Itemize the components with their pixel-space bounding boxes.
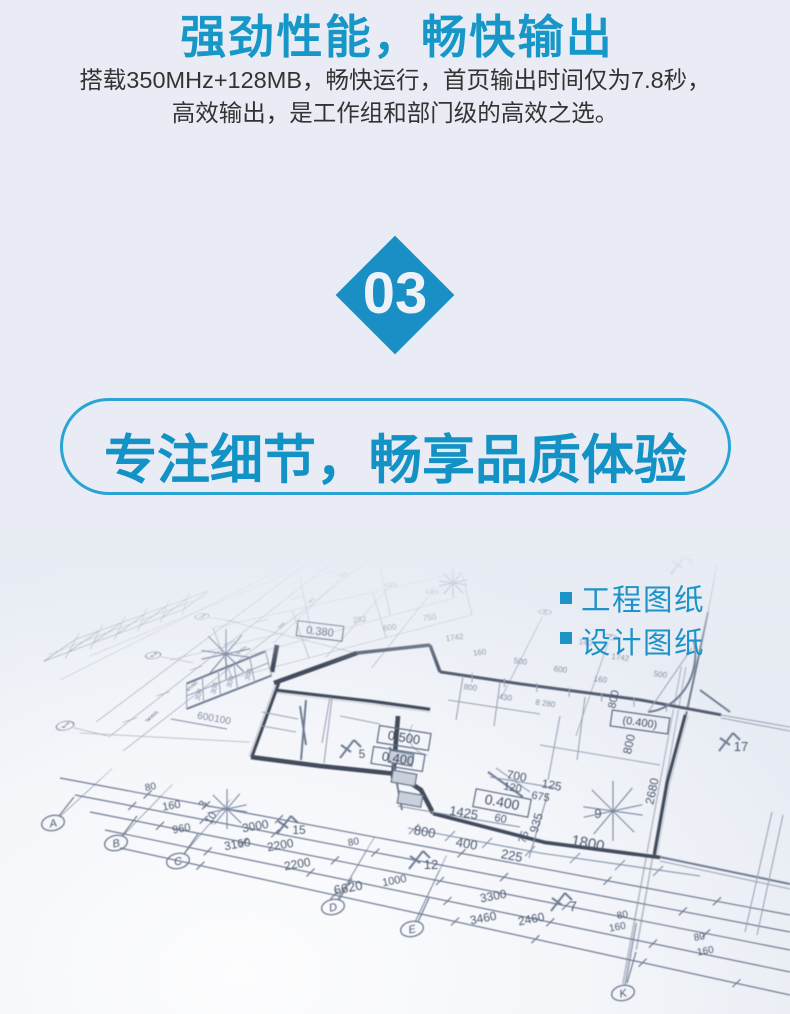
svg-text:60: 60	[493, 812, 507, 826]
svg-text:7: 7	[569, 898, 577, 914]
svg-text:3160: 3160	[223, 835, 252, 853]
svg-text:160: 160	[472, 647, 487, 658]
svg-text:400: 400	[455, 834, 479, 853]
svg-text:E: E	[407, 923, 417, 936]
svg-text:1000: 1000	[381, 873, 407, 889]
svg-text:3: 3	[197, 799, 210, 810]
svg-text:10: 10	[203, 810, 220, 827]
svg-text:935: 935	[527, 811, 546, 835]
svg-text:C: C	[173, 855, 183, 868]
svg-text:100: 100	[213, 714, 232, 728]
svg-text:80: 80	[347, 836, 360, 849]
svg-text:430: 430	[498, 692, 513, 703]
svg-text:K: K	[618, 987, 628, 1000]
svg-text:600: 600	[553, 664, 568, 675]
svg-text:A: A	[47, 817, 58, 830]
svg-text:300: 300	[244, 668, 254, 681]
svg-text:500: 500	[513, 656, 528, 667]
svg-text:500: 500	[653, 669, 668, 680]
svg-text:8 280: 8 280	[535, 698, 557, 710]
svg-text:2200: 2200	[283, 855, 312, 873]
svg-text:2460: 2460	[517, 910, 546, 929]
svg-text:600: 600	[196, 711, 215, 725]
svg-text:15: 15	[292, 823, 306, 837]
svg-text:300: 300	[210, 682, 220, 695]
svg-text:960: 960	[171, 822, 191, 837]
svg-text:5: 5	[359, 747, 366, 761]
svg-text:300: 300	[195, 688, 205, 701]
svg-text:800: 800	[620, 733, 638, 756]
svg-text:800: 800	[463, 682, 478, 693]
svg-text:225: 225	[500, 846, 524, 865]
svg-text:1800: 1800	[570, 832, 606, 855]
svg-text:160: 160	[161, 799, 181, 814]
svg-text:80: 80	[144, 781, 157, 794]
svg-text:B: B	[111, 837, 121, 850]
svg-text:160: 160	[593, 674, 608, 685]
svg-text:675: 675	[530, 790, 550, 805]
svg-text:160: 160	[608, 920, 627, 934]
svg-text:2680: 2680	[642, 776, 661, 805]
svg-text:9: 9	[594, 806, 601, 821]
svg-text:12: 12	[424, 857, 438, 872]
svg-text:600: 600	[382, 622, 397, 633]
svg-text:800: 800	[606, 689, 622, 709]
svg-text:17: 17	[734, 739, 748, 754]
svg-text:120: 120	[502, 781, 522, 796]
svg-text:1742: 1742	[445, 632, 464, 643]
svg-text:6620: 6620	[333, 877, 364, 897]
svg-text:750: 750	[422, 612, 437, 623]
svg-text:3460: 3460	[469, 909, 498, 928]
svg-text:282: 282	[352, 614, 367, 625]
svg-text:3000: 3000	[241, 817, 270, 835]
svg-text:800: 800	[413, 822, 437, 841]
svg-text:300: 300	[226, 675, 236, 688]
svg-text:D: D	[328, 901, 338, 914]
